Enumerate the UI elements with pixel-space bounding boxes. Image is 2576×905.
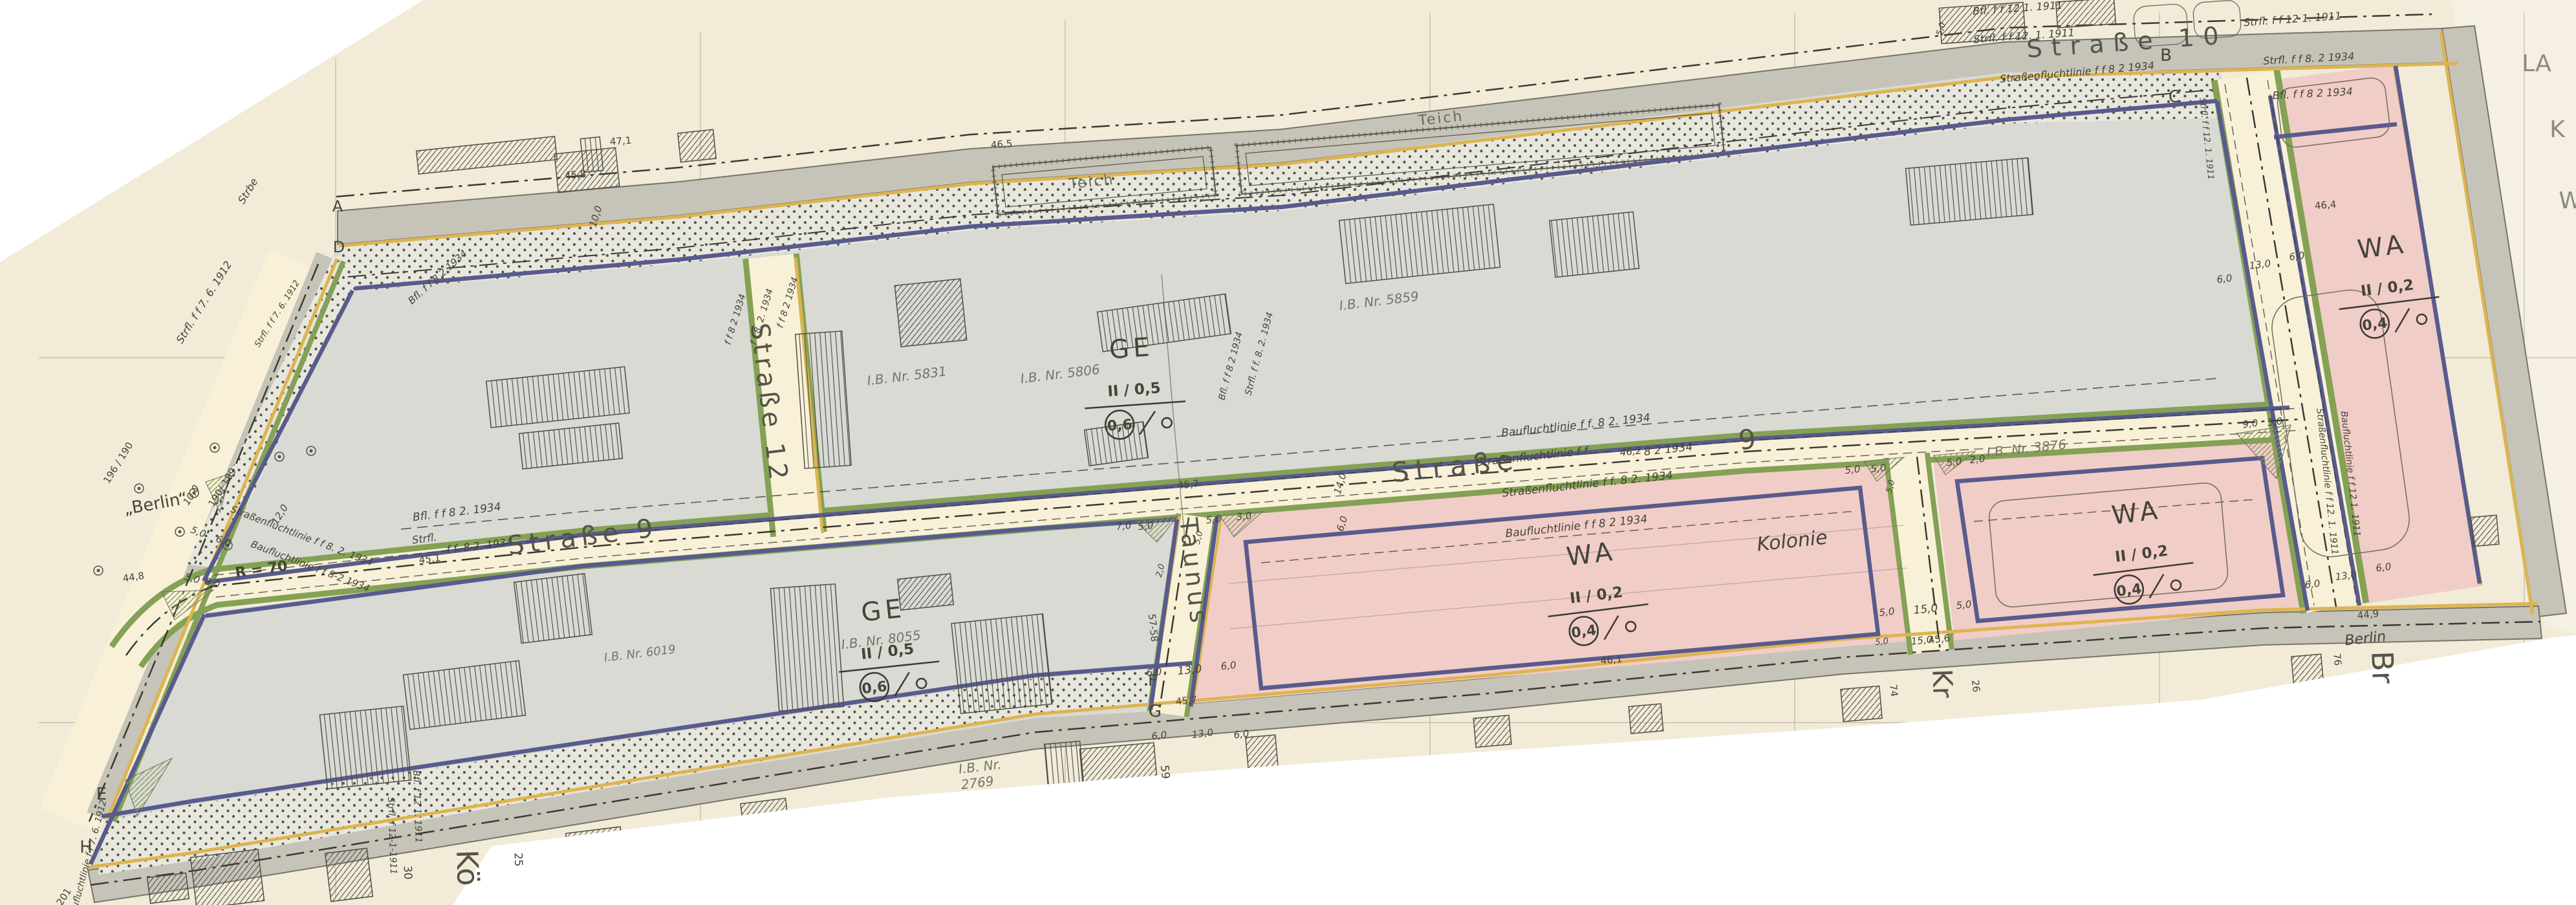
street-name-br-partial: Br [2365,650,2401,684]
zone-type-label: GE [860,594,907,628]
dimension: 6,0 [1233,728,1250,741]
elevation-point: 45,8 [564,168,587,181]
boundary-point-c: C [2169,87,2180,107]
dimension: 5,0 [1879,605,1896,618]
plot-number: 25 [512,853,525,867]
zone-coverage-value: 0,6 [1107,417,1133,435]
dimension: 15,0 [1910,633,1933,647]
zone-coverage-value: 0,4 [2361,315,2388,334]
dimension: 6,0 [1151,729,1167,743]
plot-number: 26 [1969,679,1982,693]
dimension: 6,0 [1146,666,1163,679]
dimension: 6,0 [2216,272,2233,286]
dimension: 5,0 [1870,462,1887,475]
zone-type-label: WA [1565,537,1618,572]
dimension: 5,0 [1845,463,1861,476]
plot-number: 30 [401,866,415,880]
zone-type-label: WA [2356,230,2409,265]
zone-coverage-value: 0,4 [1570,622,1597,642]
dimension: 6,0 [2304,578,2321,591]
dimension: 5,0 [1956,598,1973,611]
dimension: 5,0 [2266,415,2283,429]
elevation-point: 44,9 [2357,607,2379,621]
boundary-point-d: D [333,238,345,256]
dimension: 15,0 [1913,602,1939,617]
plot-number: 74 [1887,684,1900,697]
dimension: 9,0 [2242,417,2258,431]
elevation-point: 46,4 [2314,199,2337,212]
corner-letter-k: K [2549,116,2566,143]
dimension: 5,0 [1875,637,1889,648]
corner-letter-w: W [2559,188,2576,214]
zone-coverage-value: 0,6 [861,679,887,697]
street-kr [1907,455,1931,652]
plot-number: 76 [2331,653,2344,666]
elevation-point: 46,1 [1600,653,1623,666]
elevation-point: 45,7 [1175,693,1198,707]
street-name-kr-partial: Kr [1926,668,1959,699]
zone-type-label: GE [1108,333,1154,365]
boundary-point-g: G [1149,702,1162,721]
dimension: 7,0 [1116,519,1132,532]
corner-letter-la: LA [2522,50,2551,77]
street-name-koe-partial: Kö [449,849,486,887]
zone-coverage-value: 0,4 [2116,581,2143,600]
dimension: 6,0 [2375,561,2392,574]
plot-number: 59 [1158,765,1172,780]
boundary-point-a: A [332,197,343,215]
dimension: 5,0 [1206,513,1222,526]
elevation-point: 47,1 [609,135,632,147]
zone-type-label: WA [2110,496,2163,531]
elevation-point: 45,7 [1177,477,1200,491]
dimension: 3,0 [1236,510,1253,523]
dimension: 6,0 [1220,659,1237,672]
elevation-point: 46,5 [990,138,1013,151]
dimension: 5,0 [1946,455,1963,468]
boundary-point-b: B [2160,46,2172,65]
elevation-point: 46,2 [1619,444,1642,458]
dimension: 5,0 [1138,519,1154,532]
dimension: 13,0 [1177,662,1203,678]
street-name-strasse-9-number: 9 [1737,423,1758,457]
plan-map: GEII / 0,50,6GEII / 0,50,6WAII / 0,20,4W… [0,0,2576,905]
dimension: 6,0 [2288,250,2305,263]
dimension: 2,0 [1969,453,1986,466]
